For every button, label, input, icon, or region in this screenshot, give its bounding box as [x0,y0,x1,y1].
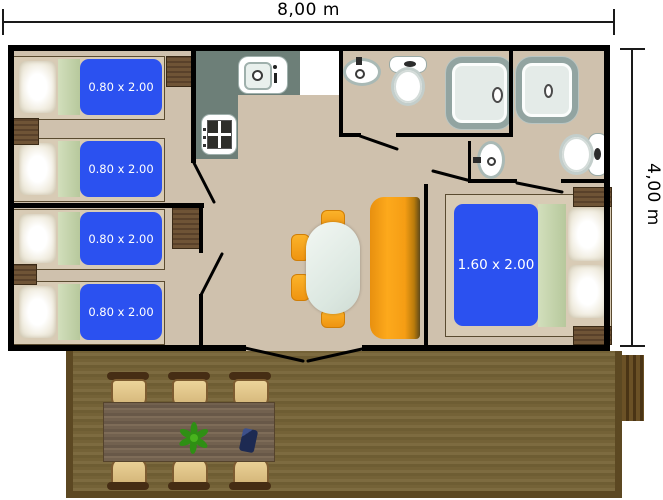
width-dimension-tick-right [613,9,615,35]
stove-icon [202,115,236,154]
wall-master-top [468,179,517,183]
height-dimension-tick-bottom [620,345,645,347]
width-dimension-line [2,21,615,23]
wall-master-top [561,179,610,183]
wall-bedroom2-right [199,205,203,253]
bed-size-label: 0.80 x 2.00 [88,232,153,246]
nightstand [13,118,39,145]
single-bed: 0.80 x 2.00 [13,281,165,345]
wall-bathroom-left [339,51,343,137]
wall-bedroom2-right [199,294,203,347]
wall-ensuite-left [468,141,471,183]
height-dimension-text: 4,00 m [643,163,663,226]
wall-exterior-top [8,45,610,51]
wall-bathroom-bottom [339,133,361,137]
sofa [370,197,420,339]
height-dimension-label: 4,00 m [643,163,663,226]
plant-icon [176,420,212,456]
width-dimension-tick-left [2,9,4,35]
washbasin-icon [477,141,505,179]
single-bed: 0.80 x 2.00 [13,138,165,202]
single-bed: 0.80 x 2.00 [13,209,165,270]
wall-exterior-bottom [362,345,610,351]
shower-icon [516,57,578,123]
deck-step [622,355,644,421]
wall-living-master [424,184,428,347]
double-bed: 1.60 x 2.00 [445,194,612,337]
dining-table [306,222,360,314]
nightstand [13,264,37,285]
wall-bedrooms-divider [8,203,204,208]
width-dimension-label: 8,00 m [2,0,615,20]
floor-plan: 8,00 m 4,00 m [0,0,663,500]
wall-shower-divider [509,51,513,137]
kitchen-sink-icon [239,57,287,93]
wall-bedroom1-right [191,45,196,163]
nightstand [172,207,200,249]
wall-bathroom-bottom [396,133,513,137]
bed-size-label: 0.80 x 2.00 [88,305,153,319]
height-dimension-line [631,49,633,347]
bathroom-sink-icon [343,58,381,86]
shower-icon [446,57,513,129]
bed-size-label: 0.80 x 2.00 [88,80,153,94]
width-dimension-text: 8,00 m [277,0,340,20]
wall-exterior-bottom [8,345,246,351]
wall-exterior-right [604,45,610,351]
bed-size-label: 1.60 x 2.00 [458,257,535,273]
wardrobe [166,56,193,87]
kitchen-unit [300,51,340,95]
height-dimension-tick-top [620,48,645,50]
bed-size-label: 0.80 x 2.00 [88,162,153,176]
single-bed: 0.80 x 2.00 [13,56,165,120]
wall-exterior-left [8,45,14,351]
